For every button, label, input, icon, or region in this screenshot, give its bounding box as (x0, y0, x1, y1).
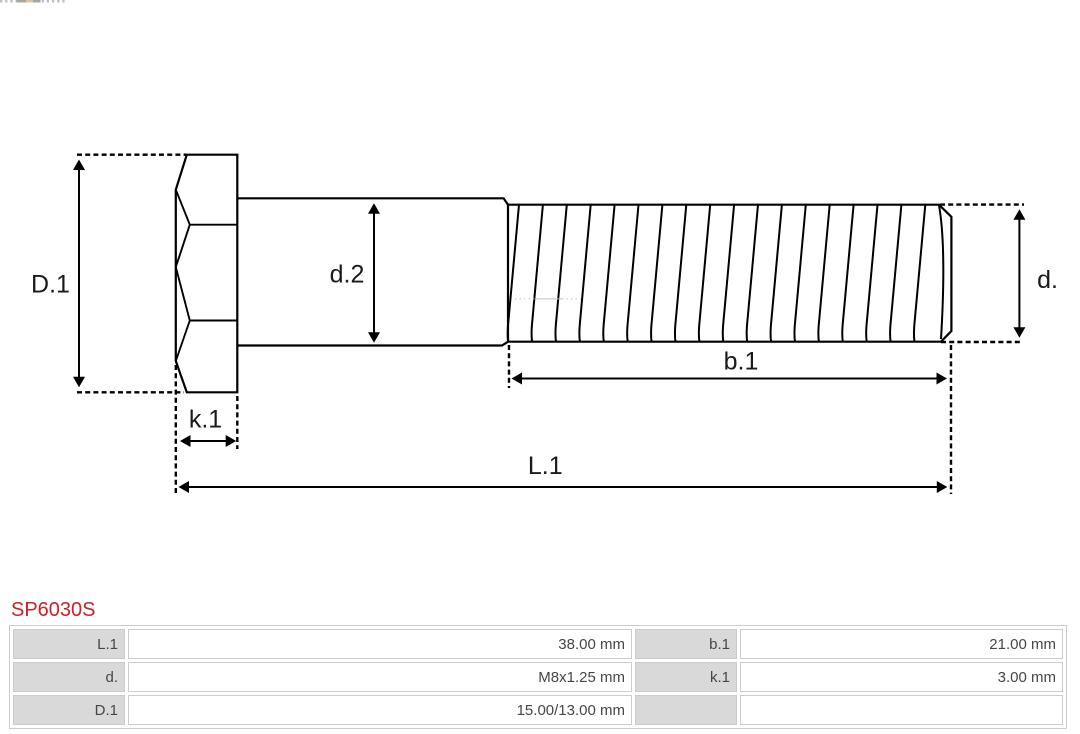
svg-text:L.1: L.1 (528, 452, 563, 480)
svg-text:d.: d. (1037, 266, 1058, 294)
svg-text:k.1: k.1 (189, 406, 222, 434)
svg-text:b.1: b.1 (724, 348, 759, 376)
svg-text:D.1: D.1 (31, 271, 70, 299)
svg-text:d.2: d.2 (330, 261, 365, 289)
